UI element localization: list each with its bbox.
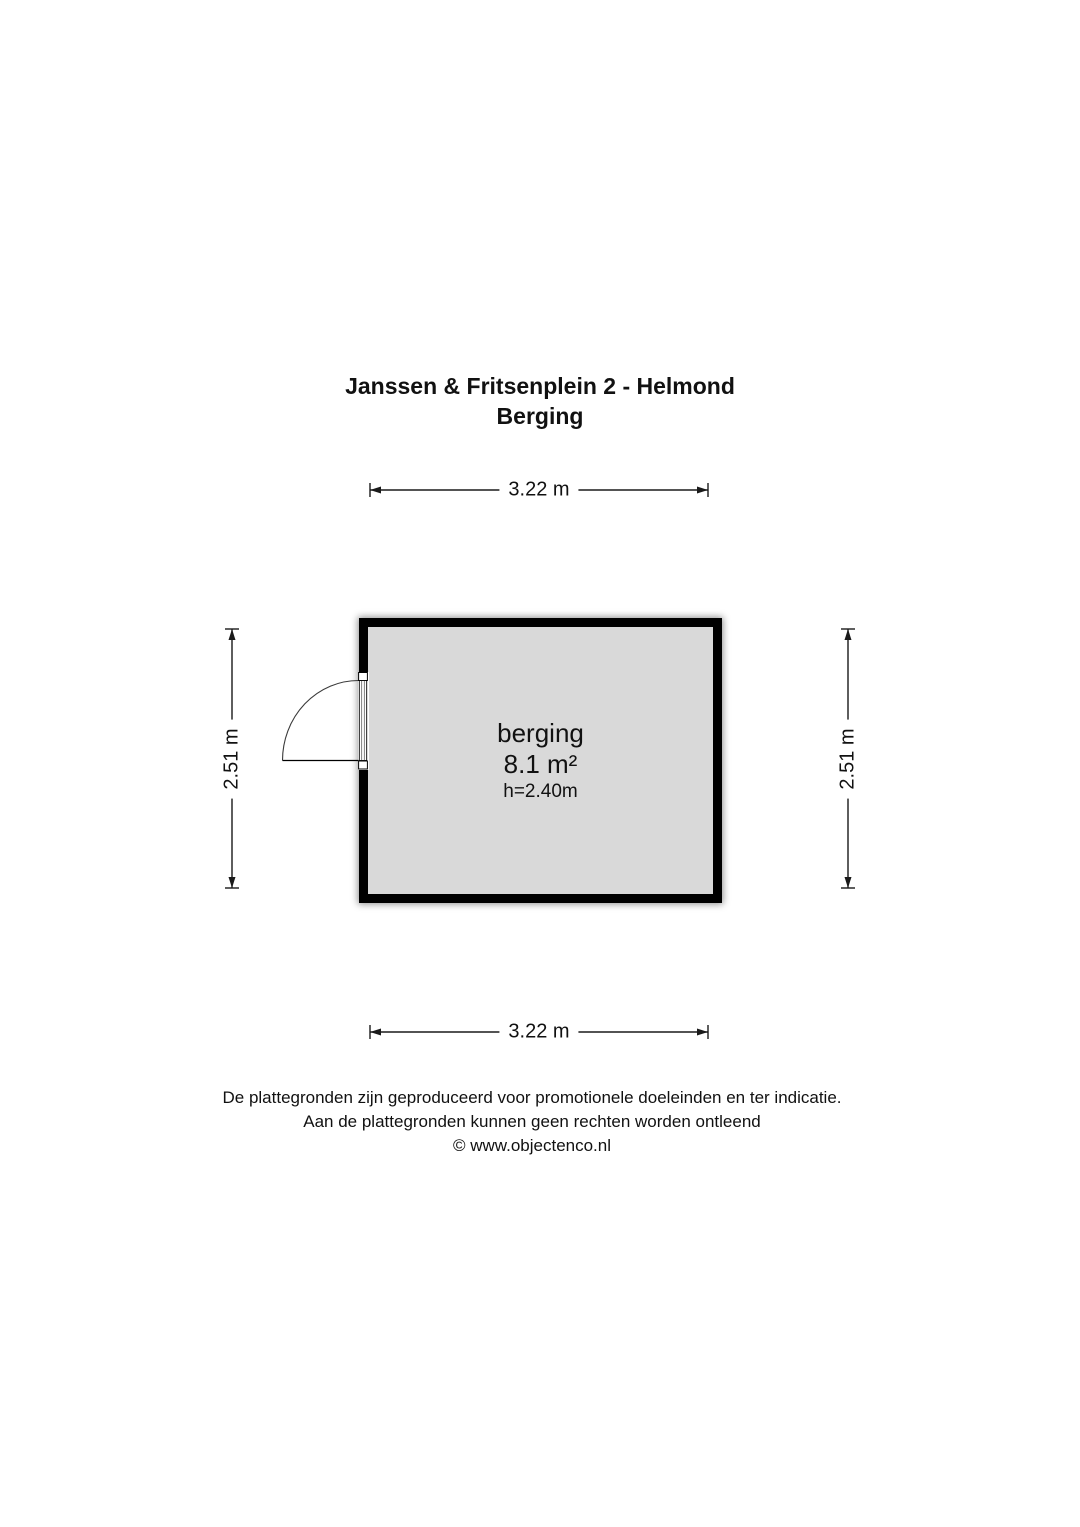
dimension-top: 3.22 m — [369, 477, 709, 503]
disclaimer-line-1: De plattegronden zijn geproduceerd voor … — [0, 1086, 1064, 1110]
door-leaf — [359, 681, 366, 761]
disclaimer-line-2: Aan de plattegronden kunnen geen rechten… — [0, 1110, 1064, 1134]
dimension-left: 2.51 m — [219, 628, 245, 889]
dimension-right: 2.51 m — [835, 628, 861, 889]
door-jamb-top — [359, 673, 368, 681]
dimension-label-bottom: 3.22 m — [499, 1021, 578, 1044]
footer-disclaimer: De plattegronden zijn geproduceerd voor … — [0, 1086, 1064, 1158]
title-block: Janssen & Fritsenplein 2 - Helmond Bergi… — [0, 371, 1080, 431]
floor-title: Berging — [0, 401, 1080, 431]
dimension-label-left: 2.51 m — [221, 719, 244, 798]
dimension-label-right: 2.51 m — [837, 719, 860, 798]
room-berging — [359, 618, 722, 903]
dimension-label-top: 3.22 m — [499, 479, 578, 502]
door-swing-arc — [283, 681, 359, 761]
property-title: Janssen & Fritsenplein 2 - Helmond — [0, 371, 1080, 401]
door-icon — [255, 655, 380, 780]
copyright-line: © www.objectenco.nl — [0, 1134, 1064, 1158]
door-jamb-bottom — [359, 761, 368, 769]
dimension-bottom: 3.22 m — [369, 1019, 709, 1045]
floorplan-page: Janssen & Fritsenplein 2 - Helmond Bergi… — [0, 0, 1080, 1527]
